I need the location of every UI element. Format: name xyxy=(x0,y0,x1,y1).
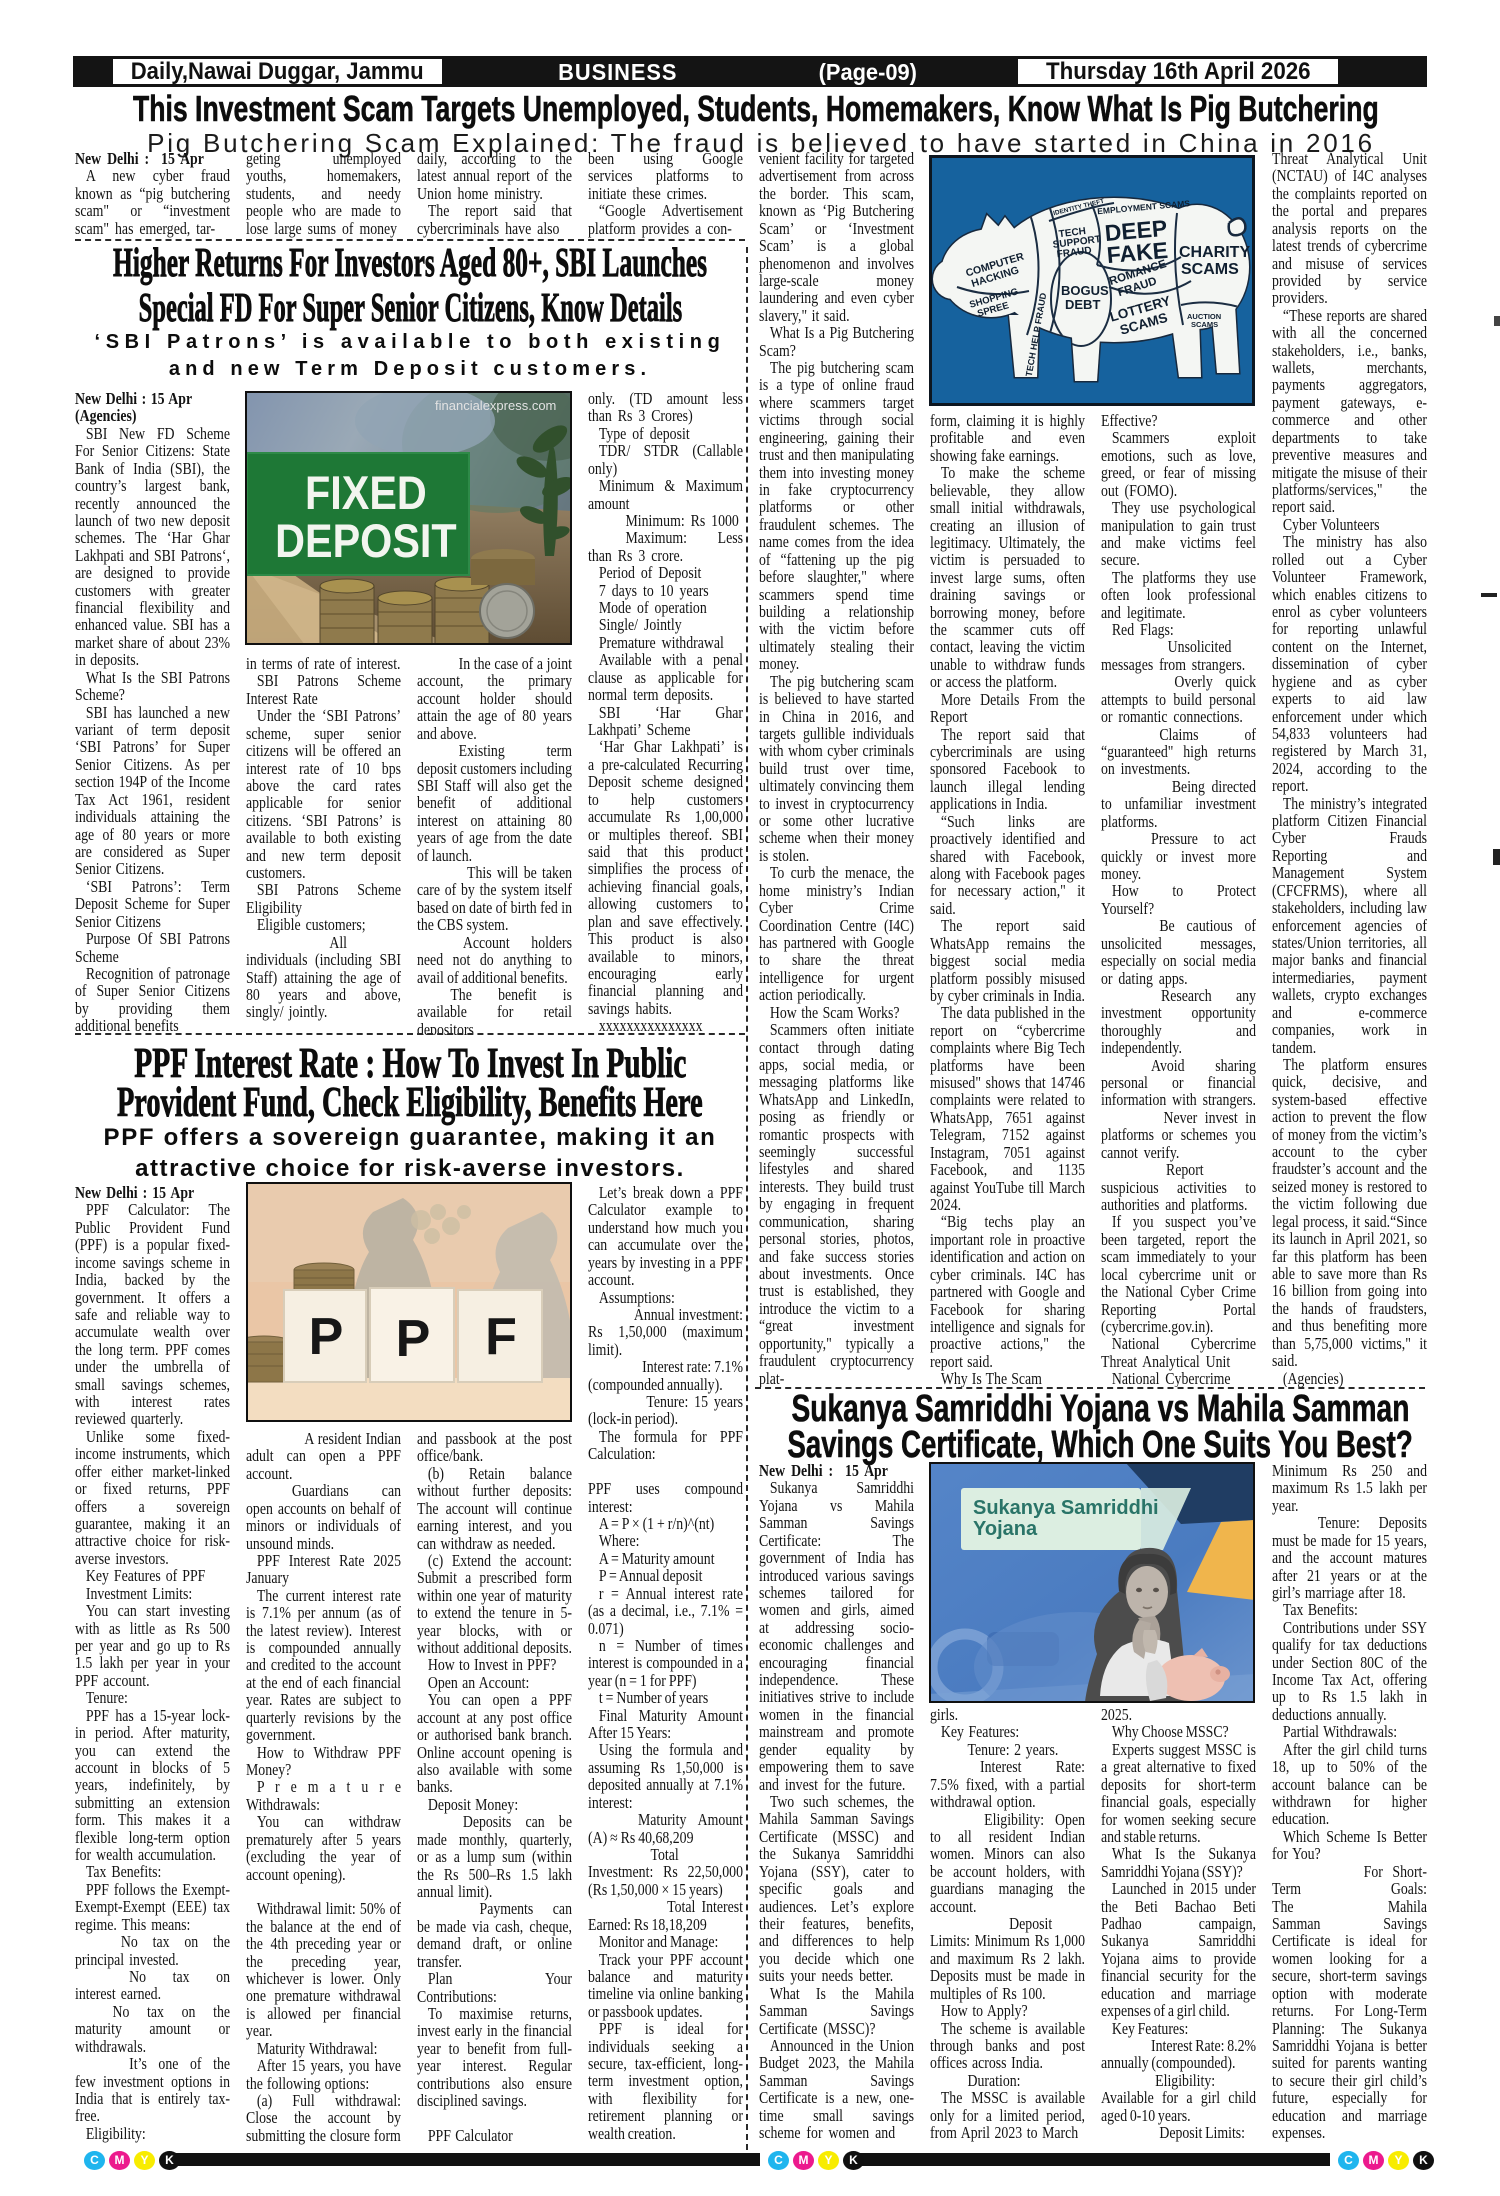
svg-text:financialexpress.com: financialexpress.com xyxy=(435,398,556,413)
svg-text:P: P xyxy=(309,1308,344,1366)
svg-text:DEPOSIT: DEPOSIT xyxy=(275,516,456,568)
svg-text:Yojana: Yojana xyxy=(973,1518,1038,1540)
svg-text:DEBT: DEBT xyxy=(1065,297,1100,312)
svg-text:P: P xyxy=(396,1310,431,1368)
svg-text:FIXED: FIXED xyxy=(305,468,427,520)
svg-text:BOGUS: BOGUS xyxy=(1061,283,1109,298)
svg-text:SCAMS: SCAMS xyxy=(1181,261,1239,278)
svg-text:F: F xyxy=(485,1308,517,1366)
svg-text:SCAMS: SCAMS xyxy=(1191,320,1218,329)
svg-text:Sukanya Samriddhi: Sukanya Samriddhi xyxy=(973,1497,1159,1519)
svg-text:CHARITY: CHARITY xyxy=(1179,244,1250,261)
